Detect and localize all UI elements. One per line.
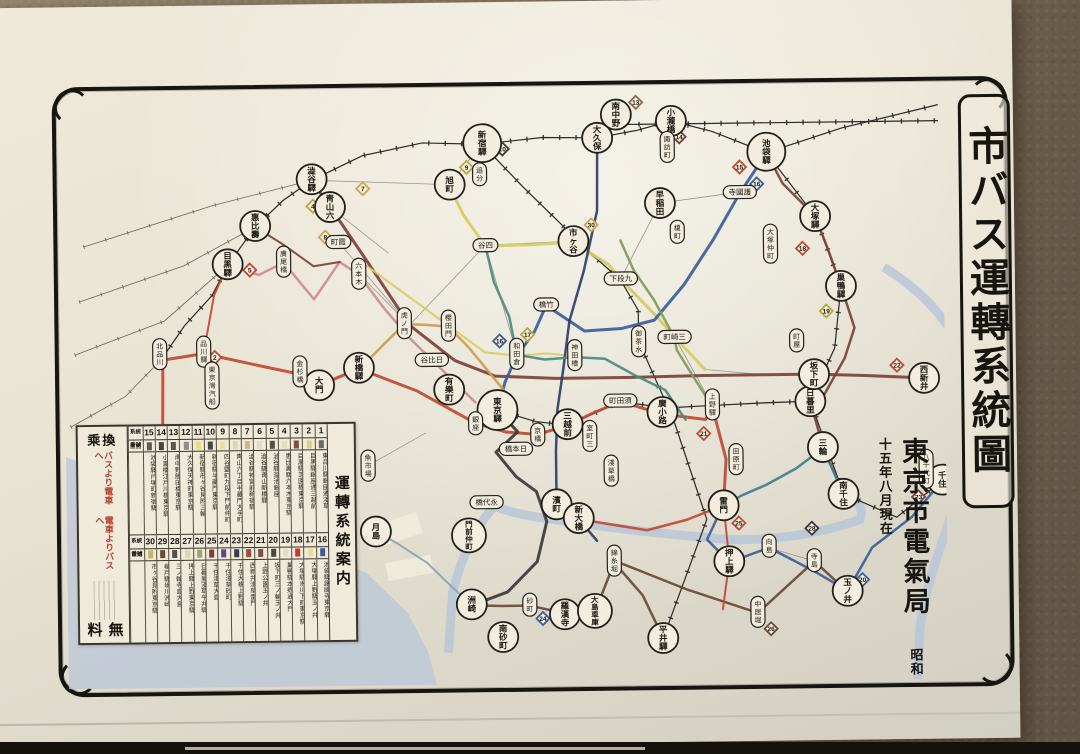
stop-label: 東京灣汽船 <box>208 365 216 406</box>
stop-label: 榎町 <box>674 223 681 240</box>
route-number: 3 <box>290 424 302 437</box>
station-label: 月島 <box>371 522 381 541</box>
route-color-swatch <box>242 548 254 559</box>
route-number: 5 <box>265 425 277 438</box>
route-color-swatch <box>205 548 217 559</box>
district-line <box>312 179 450 187</box>
fine-print <box>93 581 115 621</box>
station-label: 南砂町 <box>498 623 508 650</box>
route-color-swatch <box>228 439 240 450</box>
route-description: 靑山六丁目半藏門大手町 <box>229 451 242 533</box>
route-number-label: 2 <box>213 355 217 362</box>
station-label: 濱町 <box>552 495 561 514</box>
route-number-label: 21 <box>700 431 708 438</box>
station-label: 三越前 <box>562 411 572 438</box>
stop-label: 廣尾橋 <box>280 249 287 274</box>
stop-label: 橋本日 <box>505 443 528 453</box>
legend-title-column: 運轉系統案内 <box>327 424 357 640</box>
route-number: 22 <box>242 534 254 547</box>
stop-label: 大塚仲町 <box>767 227 774 260</box>
stop-label: 向島 <box>766 537 773 554</box>
column-header: 區間 <box>129 549 144 560</box>
route-number: 16 <box>316 533 328 546</box>
route-color-swatch <box>314 438 326 449</box>
station-label: 千住 <box>938 470 947 489</box>
station-label: 門前仲町 <box>465 520 473 552</box>
route-color-swatch <box>156 549 168 560</box>
station-label: 大門 <box>315 376 324 395</box>
route-description: 巢鴨驛本鄕通大門 <box>279 559 292 641</box>
route-description: 澁谷驛溜池銀座 <box>265 451 278 533</box>
route-number: 23 <box>230 534 242 547</box>
route-number: 13 <box>167 426 179 439</box>
route-number: 6 <box>253 425 265 438</box>
free-label: 無料 <box>84 622 126 643</box>
stop-label: 諏訪町 <box>664 135 671 160</box>
route-color-swatch <box>267 547 279 558</box>
station-label: 雷門 <box>719 496 728 515</box>
route-color-swatch <box>253 439 265 450</box>
station-label: 西新井 <box>920 364 929 391</box>
route-description: 西新井淺草雷門 <box>242 560 255 642</box>
station-label: 有樂町 <box>445 376 454 403</box>
route-description: 澁谷驛靑山新橋驛 <box>253 451 266 533</box>
route-description: 小瀧橋江戸川橋東京驛 <box>155 452 168 534</box>
route-color-swatch <box>265 439 277 450</box>
station-label: 東京驛 <box>493 396 502 423</box>
route-number: 14 <box>154 426 166 439</box>
route-number: 29 <box>156 535 168 548</box>
stop-label: 品川驛 <box>200 340 207 364</box>
route-color-swatch <box>193 548 205 559</box>
column-header: 系統番號 <box>128 426 143 439</box>
route-color-swatch <box>204 439 216 450</box>
railway-line <box>766 105 939 153</box>
route-description: 四谷鹽町九段下門前仲町 <box>216 451 229 533</box>
route-number: 2 <box>302 424 314 437</box>
stop-label: 谷四 <box>478 241 493 250</box>
column-header <box>129 561 145 643</box>
station-label: 小瀧橋 <box>666 107 676 134</box>
route-number-label: 16 <box>496 338 504 345</box>
station-label: 巢鴨驛 <box>836 272 846 299</box>
stop-label: 銀座 <box>472 415 479 432</box>
stop-label: 上野驛 <box>709 392 716 417</box>
station-label: 玉ノ井 <box>843 577 852 604</box>
route-number-label: 25 <box>735 520 743 527</box>
route-number-label: 13 <box>632 100 640 107</box>
route-color-swatch <box>155 440 167 451</box>
route-color-swatch <box>302 438 314 449</box>
route-number: 27 <box>180 534 192 547</box>
stop-label: 虎ノ門 <box>401 311 408 336</box>
stop-label: 御茶水 <box>635 329 642 354</box>
route-number-label: 26 <box>767 626 775 633</box>
route-number: 17 <box>303 533 315 546</box>
map-title: 市バス運轉系統圖 <box>964 125 1008 477</box>
route-number: 18 <box>291 533 303 546</box>
stop-label: 金杉橋 <box>296 359 303 384</box>
transfer-heading: 乘換 <box>87 430 117 449</box>
page-edge-sliver <box>185 747 645 750</box>
route-color-swatch <box>179 440 191 451</box>
stop-label: 砂町 <box>526 596 533 613</box>
route-description: 千住淺草大島 <box>205 560 218 642</box>
route-color-swatch <box>316 547 328 558</box>
transfer-rule-1: バスより電車へ <box>93 451 113 514</box>
route-color-swatch <box>278 439 290 450</box>
railway-ticks <box>766 105 939 153</box>
route-number-label: 15 <box>736 164 744 171</box>
route-number: 30 <box>143 535 155 548</box>
route-color-swatch <box>192 440 204 451</box>
stop-label: 北品川 <box>156 343 163 367</box>
station-label: 早稲田 <box>656 189 665 216</box>
stop-label: 魚市場 <box>364 453 371 478</box>
route-number: 7 <box>241 425 253 438</box>
route-description: 日暮里淺草平井驛 <box>193 560 206 642</box>
stop-label: 櫻田門 <box>445 313 452 338</box>
route-description: 澁谷驛神宮前新宿驛 <box>241 451 254 533</box>
route-color-swatch <box>142 440 154 451</box>
stop-label: 中居堀 <box>754 599 761 624</box>
route-color-swatch <box>230 548 242 559</box>
pier-landfill <box>385 555 434 581</box>
route-description: 坂下町三ノ輪玉ノ井 <box>267 559 280 641</box>
route-color-swatch <box>290 438 302 449</box>
station-label: 澁谷驛 <box>306 166 316 193</box>
station-label: 南中野 <box>611 101 620 128</box>
publisher-block: 東京市電氣局 昭和十五年八月現在 <box>855 437 936 688</box>
station-label: 目黑驛 <box>223 251 232 278</box>
frame-corner-ornament <box>976 648 1012 684</box>
route-color-swatch <box>254 547 266 558</box>
stop-label: 谷比日 <box>421 354 444 364</box>
route-number-label: 28 <box>808 526 816 533</box>
district-line <box>368 433 426 466</box>
station-label: 靑山六 <box>326 193 335 220</box>
routes-16-30: 161718192021222324252627282930系統番號區間池袋驛護… <box>129 533 329 643</box>
route-color-swatch <box>291 547 303 558</box>
route-description: 目黑驛芝園橋東京驛 <box>290 450 303 532</box>
station-label: 大久保 <box>592 124 602 151</box>
route-color-swatch <box>181 548 193 559</box>
station-label: 平井驛 <box>659 624 668 651</box>
stop-label: 京橋 <box>534 426 541 443</box>
stop-label: 追分 <box>476 166 483 183</box>
route-description: 千住淺草砂町 <box>218 560 231 642</box>
stop-label: 室町三 <box>586 423 593 448</box>
route-number-label: 5 <box>248 267 252 274</box>
route-number: 19 <box>279 533 291 546</box>
map-page: 1154891013141516181916172022232125262730… <box>0 0 1020 750</box>
route-description: 目黑驛銀座通三越前 <box>302 450 315 532</box>
station-label: 大島車庫 <box>591 594 599 627</box>
route-description: 上野公園玉ノ井 <box>254 559 267 641</box>
station-label: 市ヶ谷 <box>568 228 578 255</box>
route-color-swatch <box>279 547 291 558</box>
route-number: 8 <box>228 425 240 438</box>
route-description: 千住大橋上野驛 <box>230 560 243 642</box>
route-number: 9 <box>216 425 228 438</box>
column-header: 系統番號 <box>129 535 144 548</box>
route-description: 市ヶ谷見附東京驛 <box>144 561 157 643</box>
stop-label: 田原町 <box>732 448 739 472</box>
stop-label: 橋竹 <box>539 299 555 309</box>
route-number-label: 19 <box>823 308 831 315</box>
route-number: 11 <box>191 426 203 439</box>
route-color-swatch <box>168 548 180 559</box>
stop-label: 寺國護 <box>728 187 751 197</box>
photo-of-map: 1154891013141516181916172022232125262730… <box>0 0 1080 754</box>
route-number-label: 7 <box>361 186 365 193</box>
route-number: 28 <box>168 534 180 547</box>
routes-1-15: 123456789101112131415系統番號區間東品川驛銀座通淺草目黑驛銀… <box>128 424 328 535</box>
stop-label: 神田橋 <box>571 343 578 368</box>
station-label: 廣小路 <box>657 398 667 425</box>
route-number: 15 <box>142 426 154 439</box>
station-label: 洲崎 <box>467 595 476 614</box>
column-header <box>128 452 144 534</box>
route-number-label: 30 <box>588 222 596 229</box>
route-color-swatch <box>216 439 228 450</box>
route-color-swatch <box>217 548 229 559</box>
route-description: 大塚驛氷川下町東京驛 <box>291 559 304 641</box>
route-number: 10 <box>204 425 216 438</box>
route-color-swatch <box>304 547 316 558</box>
route-number-label: 9 <box>465 165 469 172</box>
transfer-info-panel: 乘換 バスより電車へ 電車よりバスへ 無料 <box>78 427 131 644</box>
station-label: 日暮里 <box>805 388 815 415</box>
route-number: 20 <box>266 533 278 546</box>
route-description: 池袋驛護國寺東京驛 <box>316 559 329 641</box>
route-description: 龜戸驛境川洲崎 <box>156 561 169 643</box>
route-description: 池袋驛戸塚町新宿驛 <box>142 452 155 534</box>
route-description: 押上驛上野東京驛 <box>181 560 194 642</box>
route-description: 新宿驛半藏門東京驛 <box>204 451 217 533</box>
route-color-swatch <box>167 440 179 451</box>
station-label: 大塚驛 <box>811 203 820 230</box>
page-crease <box>0 712 1020 727</box>
station-label: 旭町 <box>444 175 454 194</box>
station-label: 新宿驛 <box>478 130 487 157</box>
publisher-name: 東京市電氣局 <box>898 437 930 617</box>
stop-label: 下段九 <box>610 273 633 283</box>
route-description: 東品川驛銀座通淺草 <box>315 450 328 532</box>
stop-label: 橋代永 <box>475 497 498 507</box>
railway-ticks <box>83 180 313 247</box>
station-label: 池袋驛 <box>761 138 771 165</box>
railway-ticks <box>70 360 162 427</box>
route-number: 1 <box>314 424 326 437</box>
route-number: 12 <box>179 426 191 439</box>
route-color-swatch <box>144 549 156 560</box>
route-description: 惠比壽驛六本木東京驛 <box>278 451 291 533</box>
stop-label: 寺島 <box>811 553 818 569</box>
route-legend-table: 乘換 バスより電車へ 電車よりバスへ 無料 123456789101112131… <box>76 422 359 645</box>
route-number: 26 <box>193 534 205 547</box>
route-number-label: 18 <box>799 246 807 253</box>
route-description: 大久保天神町東京驛 <box>179 452 192 534</box>
station-label: 押上驛 <box>725 548 734 575</box>
legend-title: 運轉系統案内 <box>331 475 353 589</box>
suburban-railway-line <box>83 180 313 247</box>
station-label: 新橋驛 <box>355 354 364 381</box>
transfer-rule-2: 電車よりバスへ <box>94 516 114 579</box>
stop-label: 町田須 <box>609 396 632 405</box>
route-table-grid: 123456789101112131415系統番號區間東品川驛銀座通淺草目黑驛銀… <box>128 424 330 642</box>
route-color-swatch <box>241 439 253 450</box>
station-label: 羅漢寺 <box>561 601 570 628</box>
route-number: 4 <box>277 425 289 438</box>
station-label: 坂下町 <box>810 361 819 388</box>
stop-label: 和田倉 <box>513 341 520 366</box>
route-description: 大塚驛上野驛玉ノ井 <box>304 559 317 641</box>
stop-label: 町屋 <box>793 333 800 349</box>
station-label: 三輪 <box>819 438 828 457</box>
route-description: 三ノ輪寺島大島 <box>168 560 181 642</box>
suburban-railway-line <box>70 360 162 427</box>
route-number-label: 22 <box>893 363 901 370</box>
route-number: 25 <box>205 534 217 547</box>
column-header: 區間 <box>128 440 143 451</box>
stop-label: 淺草橋 <box>608 458 615 483</box>
route-number: 24 <box>217 534 229 547</box>
stop-label: 六本木 <box>355 261 362 286</box>
station-label: 新大橋 <box>574 504 583 531</box>
route-description: 南中野飯田橋東京驛 <box>167 452 180 534</box>
station-label: 惠比壽 <box>251 212 260 239</box>
stop-label: 町霞 <box>331 238 347 247</box>
route-number: 21 <box>254 533 266 546</box>
stop-label: 町崎三 <box>663 331 686 341</box>
route-number-label: 17 <box>524 332 532 339</box>
route-number-label: 24 <box>539 616 547 623</box>
map-title-box: 市バス運轉系統圖 <box>958 94 1015 509</box>
station-label: 南千住 <box>839 480 848 507</box>
bottom-shadow-band <box>0 742 1080 754</box>
route-description: 新宿驛市ヶ谷見附三輪 <box>192 452 205 534</box>
stop-label: 錦糸堀 <box>611 548 618 573</box>
bus-route-line <box>485 244 685 422</box>
